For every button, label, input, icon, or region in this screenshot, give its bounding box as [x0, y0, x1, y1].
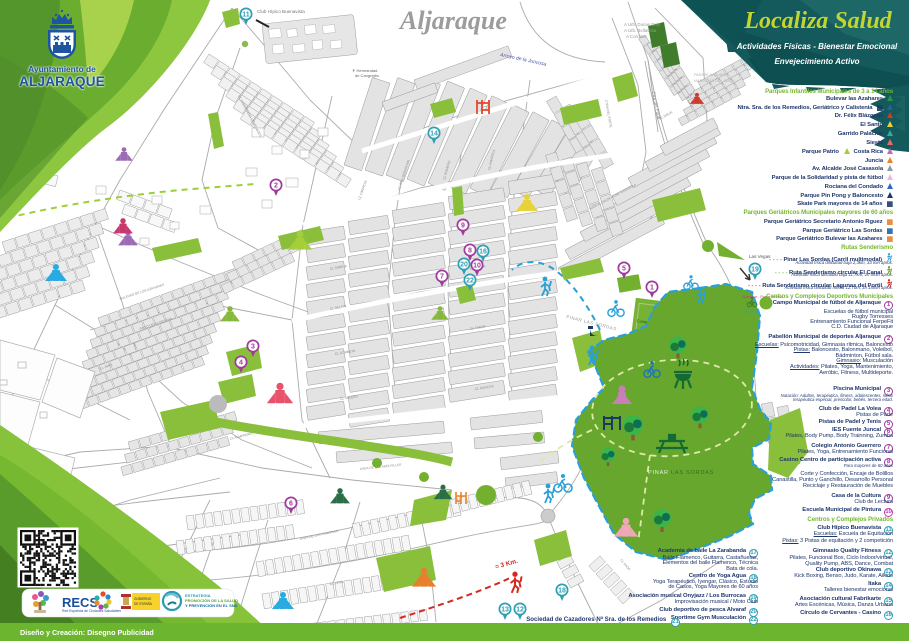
svg-text:6: 6 [289, 501, 293, 508]
svg-text:DE ESPAÑA: DE ESPAÑA [134, 601, 153, 606]
svg-text:2: 2 [274, 183, 278, 190]
svg-text:Red Española de Ciudades Salud: Red Española de Ciudades Saludables [62, 609, 121, 613]
svg-text:RECS: RECS [62, 595, 98, 610]
svg-text:Y PREVENCIÓN EN EL SNS: Y PREVENCIÓN EN EL SNS [185, 603, 238, 608]
svg-text:4: 4 [239, 360, 243, 367]
svg-text:de Cangrejito: de Cangrejito [355, 73, 380, 78]
svg-text:3: 3 [251, 344, 255, 351]
svg-text:14: 14 [430, 131, 438, 138]
svg-text:GOBIERNO: GOBIERNO [134, 597, 152, 601]
svg-text:11: 11 [242, 12, 250, 19]
